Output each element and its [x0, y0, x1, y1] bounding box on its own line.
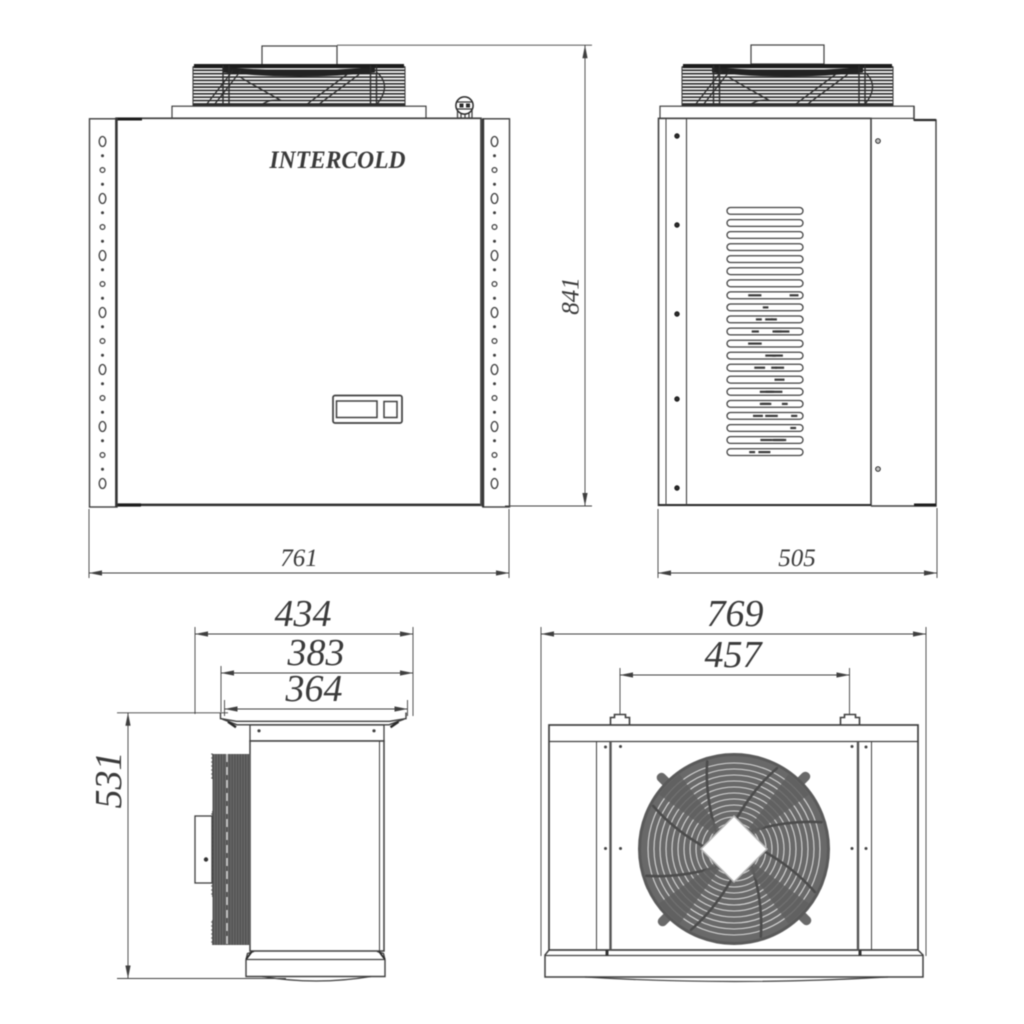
svg-text:531: 531: [88, 752, 130, 809]
svg-text:364: 364: [285, 668, 343, 710]
svg-text:761: 761: [280, 545, 318, 572]
svg-text:841: 841: [558, 277, 585, 315]
svg-text:457: 457: [705, 634, 764, 676]
svg-text:INTERCOLD: INTERCOLD: [269, 147, 406, 174]
svg-text:505: 505: [778, 545, 816, 572]
svg-text:434: 434: [275, 593, 332, 635]
svg-text:769: 769: [707, 593, 764, 635]
